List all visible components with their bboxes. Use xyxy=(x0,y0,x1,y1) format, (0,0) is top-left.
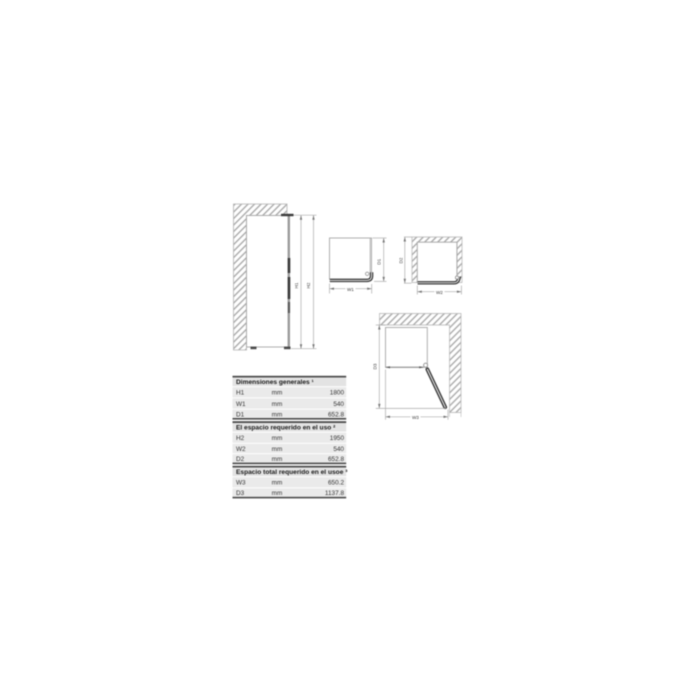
svg-text:Espacio total requerido en el: Espacio total requerido en el usoe ³ xyxy=(236,469,348,476)
svg-text:W3: W3 xyxy=(236,480,246,487)
svg-text:Dimensiones generales ¹: Dimensiones generales ¹ xyxy=(236,379,314,386)
svg-text:W1: W1 xyxy=(347,287,354,292)
svg-text:H2: H2 xyxy=(306,282,311,288)
svg-text:W1: W1 xyxy=(236,401,246,408)
svg-text:1800: 1800 xyxy=(330,390,345,397)
svg-text:mm: mm xyxy=(272,390,283,397)
svg-text:652.8: 652.8 xyxy=(328,456,344,463)
svg-text:mm: mm xyxy=(272,435,283,442)
svg-text:540: 540 xyxy=(333,401,344,408)
svg-text:D3: D3 xyxy=(236,490,245,497)
svg-text:540: 540 xyxy=(333,446,344,453)
svg-text:mm: mm xyxy=(272,456,283,463)
svg-text:650.2: 650.2 xyxy=(328,480,344,487)
svg-text:H2: H2 xyxy=(236,435,245,442)
svg-text:W2: W2 xyxy=(236,446,246,453)
svg-text:mm: mm xyxy=(272,401,283,408)
svg-text:D3: D3 xyxy=(373,363,378,369)
svg-text:1137.8: 1137.8 xyxy=(325,490,345,497)
svg-text:W2: W2 xyxy=(436,290,443,295)
svg-text:H1: H1 xyxy=(236,390,245,397)
svg-text:652.8: 652.8 xyxy=(328,411,344,418)
svg-text:mm: mm xyxy=(272,480,283,487)
svg-text:D1: D1 xyxy=(236,411,245,418)
svg-text:H1: H1 xyxy=(294,282,299,288)
svg-text:El espacio requerido en el uso: El espacio requerido en el uso ² xyxy=(236,425,336,432)
svg-text:D2: D2 xyxy=(236,456,245,463)
svg-text:mm: mm xyxy=(272,490,283,497)
svg-text:1950: 1950 xyxy=(330,435,345,442)
svg-text:mm: mm xyxy=(272,411,283,418)
svg-text:W3: W3 xyxy=(412,415,419,420)
svg-text:mm: mm xyxy=(272,446,283,453)
svg-text:D1: D1 xyxy=(377,258,382,264)
svg-text:D2: D2 xyxy=(398,257,403,263)
